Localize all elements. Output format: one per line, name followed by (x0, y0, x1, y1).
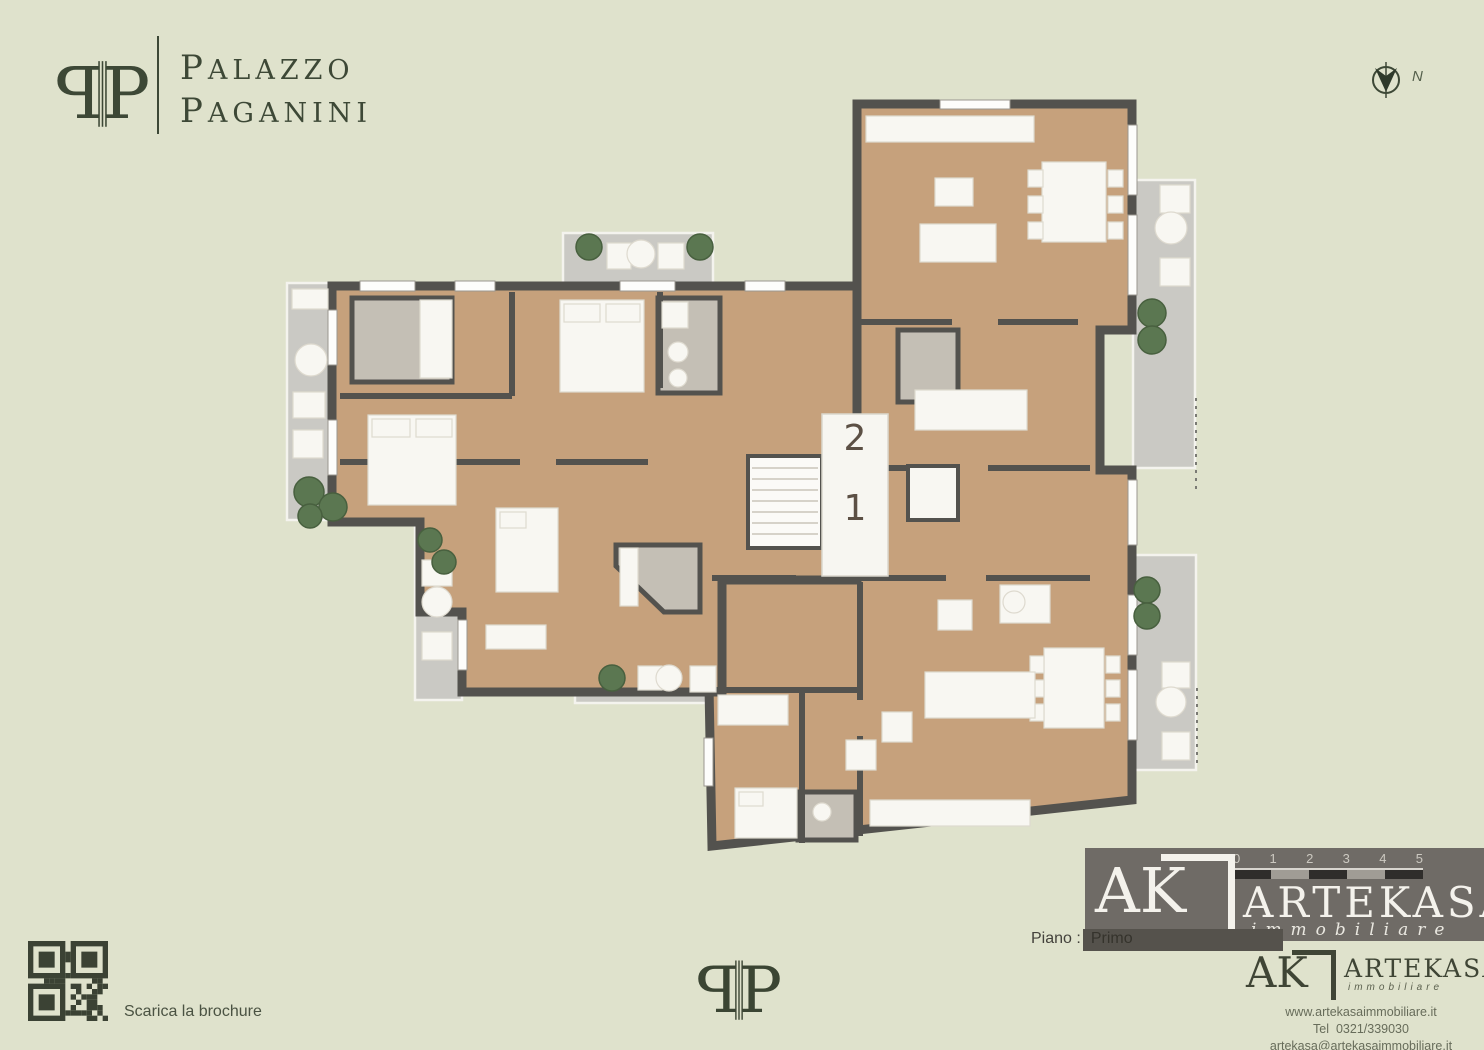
brochure-page: 2 1 P P Palazzo Paganini N 0 1 2 3 (0, 0, 1484, 1050)
svg-text:P: P (55, 52, 103, 135)
north-label: N (1412, 68, 1423, 85)
scale-tick: 1 (1270, 851, 1277, 866)
qr-code[interactable] (28, 941, 108, 1021)
agency-phone-label: Tel (1313, 1022, 1329, 1036)
agency-logo: AK ARTEKASA immobiliare (1238, 948, 1484, 1004)
north-arrow-icon (1368, 56, 1408, 104)
floor-label: Piano :Primo (1031, 930, 1133, 948)
watermark-ak-logo: AK (1095, 854, 1186, 927)
ak-bracket-icon (1228, 854, 1235, 932)
agency-subtitle: immobiliare (1348, 982, 1443, 993)
brand-line1: Palazzo (180, 48, 372, 91)
svg-text:P: P (103, 52, 151, 135)
agency-website[interactable]: www.artekasaimmobiliare.it (1238, 1004, 1484, 1021)
pp-monogram-icon: P P (694, 948, 784, 1026)
unit-label-1: 1 (835, 488, 875, 529)
scale-tick: 4 (1379, 851, 1386, 866)
pp-monogram-icon: P P (55, 38, 150, 143)
ak-bracket-icon (1292, 950, 1336, 955)
floor-label-value: Primo (1081, 930, 1133, 947)
scale-tick: 5 (1416, 851, 1423, 866)
scale-tick: 2 (1306, 851, 1313, 866)
watermark-logo-box: 0 1 2 3 4 5 AK ARTEKASA immobiliare (1085, 848, 1484, 941)
brand-divider (157, 36, 159, 134)
unit-label-2: 2 (835, 418, 875, 459)
stairs (748, 456, 822, 548)
compass: N (1368, 56, 1448, 104)
brand-name: Palazzo Paganini (180, 48, 372, 134)
scale-bar-ticks: 0 1 2 3 4 5 (1233, 851, 1423, 866)
agency-name: ARTEKASA (1344, 954, 1484, 983)
ak-bracket-icon (1331, 950, 1336, 1000)
agency-phone[interactable]: Tel 0321/339030 (1238, 1021, 1484, 1038)
qr-label[interactable]: Scarica la brochure (124, 1003, 262, 1021)
agency-block: AK ARTEKASA immobiliare www.artekasaimmo… (1238, 948, 1484, 1050)
agency-phone-number: 0321/339030 (1336, 1022, 1409, 1036)
floor-label-prefix: Piano : (1031, 930, 1081, 947)
svg-text:P: P (739, 954, 782, 1026)
agency-ak-logo: AK (1246, 948, 1308, 997)
scale-tick: 3 (1343, 851, 1350, 866)
ak-bracket-icon (1161, 854, 1235, 861)
brand-line2: Paganini (180, 91, 372, 134)
agency-email[interactable]: artekasa@artekasaimmobiliare.it (1238, 1038, 1484, 1050)
svg-text:P: P (696, 954, 739, 1026)
